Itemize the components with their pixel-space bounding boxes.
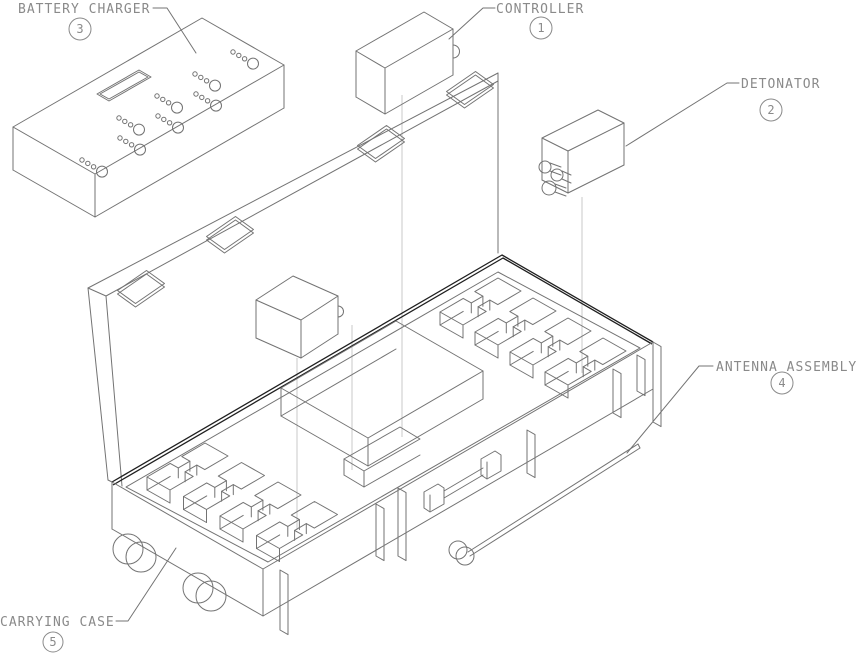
callout-label-controller: CONTROLLER [496,2,584,17]
antenna-assembly-drawing [449,444,640,565]
callout-number-carrying-case: 5 [49,635,56,649]
lid-mounted-box [256,276,344,358]
foam-small-cutout [344,427,420,487]
controller-drawing [356,12,460,114]
detonator-drawing [539,110,624,196]
case-feet [113,534,226,611]
diagram-canvas: CONTROLLER 1 DETONATOR 2 BATTERY CHARGER… [0,0,860,654]
callout-label-carrying-case: CARRYING CASE [0,615,115,630]
case-front-fins [280,342,661,635]
callout-label-detonator: DETONATOR [741,77,820,92]
charger-led-clusters [80,50,259,177]
battery-charger-drawing [13,18,284,217]
lid-latch-plates [118,72,494,308]
callout-number-battery-charger: 3 [76,22,83,36]
case-lid-drawing [88,72,498,487]
foam-slots-left [147,443,338,562]
callout-number-detonator: 2 [767,103,774,117]
callout-number-controller: 1 [537,21,544,35]
callout-labels: CONTROLLER 1 DETONATOR 2 BATTERY CHARGER… [0,2,857,652]
carrying-case-drawing [112,272,661,635]
foam-central-opening [281,321,483,466]
callout-number-antenna-assembly: 4 [778,376,785,390]
callout-label-battery-charger: BATTERY CHARGER [18,2,150,17]
case-handle [424,451,501,512]
exploded-view-drawing: CONTROLLER 1 DETONATOR 2 BATTERY CHARGER… [0,0,860,654]
